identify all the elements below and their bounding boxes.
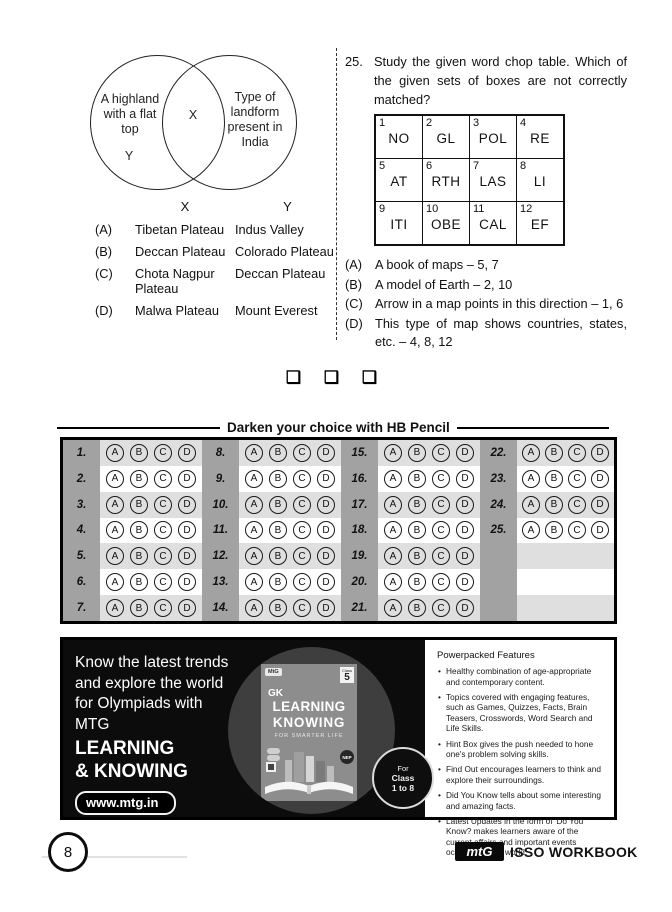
omr-bubble-15-D[interactable]: D (456, 444, 474, 462)
omr-bubble-11-A[interactable]: A (245, 521, 263, 539)
option-y-value: Mount Everest (235, 303, 340, 318)
for-class-badge: For Class 1 to 8 (372, 747, 434, 809)
omr-number-cell (480, 543, 517, 569)
option-label: (C) (95, 266, 135, 296)
ad-copy: Know the latest trends and explore the w… (75, 653, 228, 815)
omr-bubble-3-D[interactable]: D (178, 496, 196, 514)
chop-cell-text: CAL (470, 217, 516, 232)
omr-bubble-22-B[interactable]: B (545, 444, 563, 462)
omr-bubble-18-A[interactable]: A (384, 521, 402, 539)
omr-number-cell: 8. (202, 440, 239, 466)
omr-number-cell: 17. (341, 492, 378, 518)
qr-code (266, 762, 276, 772)
omr-number-cell: 14. (202, 595, 239, 621)
book-tagline: FOR SMARTER LIFE (261, 733, 357, 739)
chop-cell-number: 2 (426, 117, 432, 129)
omr-title: Darken your choice with HB Pencil (227, 420, 450, 435)
chop-cell-number: 5 (379, 160, 385, 172)
omr-number-cell: 23. (480, 466, 517, 492)
question-option: (C)Arrow in a map points in this directi… (345, 295, 627, 314)
omr-bubble-13-D[interactable]: D (317, 573, 335, 591)
omr-bubble-4-C[interactable]: C (154, 521, 172, 539)
omr-bubble-25-B[interactable]: B (545, 521, 563, 539)
omr-bubble-20-C[interactable]: C (432, 573, 450, 591)
omr-bubble-24-B[interactable]: B (545, 496, 563, 514)
omr-number-cell: 9. (202, 466, 239, 492)
omr-bubble-14-D[interactable]: D (317, 599, 335, 617)
feature-item: Find Out encourages learners to think an… (437, 764, 606, 785)
omr-number-cell: 21. (341, 595, 378, 621)
omr-bubble-10-D[interactable]: D (317, 496, 335, 514)
omr-bubble-9-C[interactable]: C (293, 470, 311, 488)
gk-label: GK (268, 688, 283, 699)
chop-cell-text: LAS (470, 174, 516, 189)
feature-item: Healthy combination of age-appropriate a… (437, 666, 606, 687)
option-label: (B) (95, 244, 135, 259)
omr-bubble-23-C[interactable]: C (568, 470, 586, 488)
book-title-line2: KNOWING (261, 715, 357, 730)
omr-bubble-21-A[interactable]: A (384, 599, 402, 617)
omr-bubble-13-A[interactable]: A (245, 573, 263, 591)
question-option: (A)A book of maps – 5, 7 (345, 256, 627, 275)
omr-bubble-6-C[interactable]: C (154, 573, 172, 591)
omr-bubble-23-A[interactable]: A (522, 470, 540, 488)
omr-bubble-row (517, 595, 614, 621)
book-title-line1: LEARNING (261, 699, 357, 714)
omr-number-cell: 19. (341, 543, 378, 569)
omr-number-cell: 15. (341, 440, 378, 466)
chop-cell-text: ITI (376, 217, 422, 232)
omr-bubble-24-C[interactable]: C (568, 496, 586, 514)
omr-bubble-17-A[interactable]: A (384, 496, 402, 514)
chop-cell-text: RE (517, 131, 563, 146)
omr-bubble-17-B[interactable]: B (408, 496, 426, 514)
omr-bubble-6-D[interactable]: D (178, 573, 196, 591)
omr-bubble-5-B[interactable]: B (130, 547, 148, 565)
omr-bubble-13-C[interactable]: C (293, 573, 311, 591)
omr-bubble-8-B[interactable]: B (269, 444, 287, 462)
omr-bubble-16-C[interactable]: C (432, 470, 450, 488)
omr-bubble-25-D[interactable]: D (591, 521, 609, 539)
omr-bubble-19-D[interactable]: D (456, 547, 474, 565)
omr-bubble-16-D[interactable]: D (456, 470, 474, 488)
chop-cell-number: 12 (520, 203, 532, 215)
omr-bubble-19-C[interactable]: C (432, 547, 450, 565)
omr-number-cell: 12. (202, 543, 239, 569)
chop-cell-text: NO (376, 131, 422, 146)
open-book-illustration (263, 775, 355, 801)
option-y-value: Deccan Plateau (235, 266, 340, 296)
chop-cell: 5AT (375, 159, 423, 202)
omr-bubble-11-D[interactable]: D (317, 521, 335, 539)
omr-bubble-row: ABCD (517, 440, 614, 466)
omr-bubble-2-B[interactable]: B (130, 470, 148, 488)
omr-bubble-10-C[interactable]: C (293, 496, 311, 514)
omr-answer-grid: 1.ABCD8.ABCD15.ABCD22.ABCD2.ABCD9.ABCD16… (60, 437, 617, 624)
chop-cell-number: 4 (520, 117, 526, 129)
omr-number-cell: 7. (63, 595, 100, 621)
page-number-badge: 8 (48, 832, 88, 872)
badge-line: Class (392, 773, 415, 783)
chop-cell: 10OBE (423, 202, 470, 246)
chop-cell-text: AT (376, 174, 422, 189)
omr-bubble-1-D[interactable]: D (178, 444, 196, 462)
omr-bubble-row: ABCD (378, 492, 480, 518)
omr-number-cell: 3. (63, 492, 100, 518)
omr-bubble-8-D[interactable]: D (317, 444, 335, 462)
omr-bubble-25-C[interactable]: C (568, 521, 586, 539)
omr-bubble-15-B[interactable]: B (408, 444, 426, 462)
omr-bubble-20-D[interactable]: D (456, 573, 474, 591)
omr-title-row: Darken your choice with HB Pencil (57, 420, 618, 435)
omr-number-cell (480, 569, 517, 595)
venn-options-table: X Y (A)Tibetan PlateauIndus Valley(B)Dec… (95, 199, 340, 325)
option-x-value: Tibetan Plateau (135, 222, 235, 237)
omr-bubble-row: ABCD (517, 492, 614, 518)
chop-cell-number: 6 (426, 160, 432, 172)
omr-bubble-23-D[interactable]: D (591, 470, 609, 488)
omr-bubble-6-B[interactable]: B (130, 573, 148, 591)
omr-bubble-12-C[interactable]: C (293, 547, 311, 565)
omr-bubble-1-B[interactable]: B (130, 444, 148, 462)
venn-option-row: (B)Deccan PlateauColorado Plateau (95, 244, 340, 259)
option-label: (A) (345, 256, 375, 275)
option-y-value: Colorado Plateau (235, 244, 340, 259)
omr-bubble-16-B[interactable]: B (408, 470, 426, 488)
cover-badge-oval (267, 748, 280, 754)
omr-bubble-row: ABCD (239, 595, 341, 621)
option-x-value: Malwa Plateau (135, 303, 235, 318)
chop-cell-text: RTH (423, 174, 469, 189)
omr-bubble-15-A[interactable]: A (384, 444, 402, 462)
chop-cell: 8LI (517, 159, 565, 202)
omr-bubble-9-B[interactable]: B (269, 470, 287, 488)
mtg-footer-logo: mtG (455, 842, 504, 861)
omr-bubble-7-B[interactable]: B (130, 599, 148, 617)
option-x-value: Deccan Plateau (135, 244, 235, 259)
omr-number-cell: 4. (63, 518, 100, 544)
omr-bubble-3-B[interactable]: B (130, 496, 148, 514)
omr-bubble-7-C[interactable]: C (154, 599, 172, 617)
chop-cell-text: GL (423, 131, 469, 146)
omr-number-cell (480, 595, 517, 621)
chop-cell-number: 11 (473, 203, 484, 215)
omr-bubble-24-A[interactable]: A (522, 496, 540, 514)
omr-number-cell: 11. (202, 518, 239, 544)
omr-bubble-21-B[interactable]: B (408, 599, 426, 617)
omr-bubble-25-A[interactable]: A (522, 521, 540, 539)
option-label: (A) (95, 222, 135, 237)
omr-bubble-21-C[interactable]: C (432, 599, 450, 617)
omr-number-cell: 18. (341, 518, 378, 544)
chop-cell: 6RTH (423, 159, 470, 202)
omr-bubble-18-D[interactable]: D (456, 521, 474, 539)
omr-bubble-19-B[interactable]: B (408, 547, 426, 565)
mtg-logo: MtG (265, 668, 282, 676)
omr-bubble-row: ABCD (378, 543, 480, 569)
omr-bubble-12-D[interactable]: D (317, 547, 335, 565)
omr-bubble-row: ABCD (378, 440, 480, 466)
column-x-header: X (135, 199, 235, 214)
book-showcase-circle: MtG Class 5 GK LEARNING KNOWING FOR SMAR… (228, 647, 395, 814)
chop-cell-text: LI (517, 174, 563, 189)
omr-bubble-4-A[interactable]: A (106, 521, 124, 539)
omr-bubble-4-D[interactable]: D (178, 521, 196, 539)
omr-number-cell: 1. (63, 440, 100, 466)
omr-bubble-10-B[interactable]: B (269, 496, 287, 514)
omr-bubble-9-D[interactable]: D (317, 470, 335, 488)
column-divider (336, 48, 337, 340)
omr-bubble-3-A[interactable]: A (106, 496, 124, 514)
badge-line: For (397, 764, 408, 773)
omr-number-cell: 6. (63, 569, 100, 595)
chop-cell-number: 7 (473, 160, 479, 172)
workbook-page: A highland with a flat top X Y Type of l… (0, 0, 672, 912)
omr-bubble-row: ABCD (100, 466, 202, 492)
chop-cell-text: EF (517, 217, 563, 232)
omr-bubble-2-A[interactable]: A (106, 470, 124, 488)
omr-bubble-2-C[interactable]: C (154, 470, 172, 488)
option-text: This type of map shows countries, states… (375, 315, 627, 352)
omr-bubble-17-D[interactable]: D (456, 496, 474, 514)
chop-cell: 4RE (517, 115, 565, 159)
omr-number-cell: 16. (341, 466, 378, 492)
omr-bubble-row: ABCD (378, 518, 480, 544)
omr-number-cell: 5. (63, 543, 100, 569)
omr-number-cell: 22. (480, 440, 517, 466)
option-text: A model of Earth – 2, 10 (375, 276, 627, 295)
chop-cell: 12EF (517, 202, 565, 246)
omr-bubble-13-B[interactable]: B (269, 573, 287, 591)
omr-bubble-6-A[interactable]: A (106, 573, 124, 591)
omr-number-cell: 24. (480, 492, 517, 518)
omr-bubble-14-B[interactable]: B (269, 599, 287, 617)
ad-brand-title: LEARNING & KNOWING (75, 737, 228, 783)
badge-line: 1 to 8 (392, 783, 414, 793)
venn-left-label: A highland with a flat top (96, 92, 164, 137)
question-option: (D)This type of map shows countries, sta… (345, 315, 627, 352)
features-title: Powerpacked Features (437, 650, 606, 661)
omr-bubble-row: ABCD (517, 518, 614, 544)
option-text: Arrow in a map points in this direction … (375, 295, 627, 314)
omr-bubble-row: ABCD (100, 518, 202, 544)
chop-cell: 11CAL (470, 202, 517, 246)
omr-bubble-row: ABCD (239, 518, 341, 544)
chop-cell-number: 9 (379, 203, 385, 215)
question-25: 25. Study the given word chop table. Whi… (345, 52, 627, 353)
omr-bubble-row: ABCD (100, 492, 202, 518)
class-number: 5 (340, 673, 354, 683)
omr-bubble-14-C[interactable]: C (293, 599, 311, 617)
omr-bubble-row: ABCD (517, 466, 614, 492)
omr-bubble-14-A[interactable]: A (245, 599, 263, 617)
omr-bubble-8-C[interactable]: C (293, 444, 311, 462)
option-y-value: Indus Valley (235, 222, 340, 237)
venn-options-header: X Y (95, 199, 340, 214)
column-y-header: Y (235, 199, 340, 214)
chop-cell-text: OBE (423, 217, 469, 232)
ad-dark-panel: Know the latest trends and explore the w… (63, 640, 425, 817)
venn-right-label: Type of landform present in India (222, 90, 288, 150)
omr-number-cell: 2. (63, 466, 100, 492)
omr-bubble-row: ABCD (100, 569, 202, 595)
omr-bubble-row: ABCD (239, 543, 341, 569)
omr-bubble-20-A[interactable]: A (384, 573, 402, 591)
omr-bubble-21-D[interactable]: D (456, 599, 474, 617)
class-level-badge: Class 5 (340, 667, 354, 683)
omr-bubble-1-C[interactable]: C (154, 444, 172, 462)
omr-bubble-row: ABCD (378, 595, 480, 621)
chop-cell-number: 3 (473, 117, 479, 129)
omr-bubble-8-A[interactable]: A (245, 444, 263, 462)
omr-bubble-11-C[interactable]: C (293, 521, 311, 539)
feature-item: Topics covered with engaging features, s… (437, 692, 606, 734)
omr-bubble-16-A[interactable]: A (384, 470, 402, 488)
omr-bubble-24-D[interactable]: D (591, 496, 609, 514)
omr-bubble-22-C[interactable]: C (568, 444, 586, 462)
venn-option-row: (A)Tibetan PlateauIndus Valley (95, 222, 340, 237)
omr-bubble-7-A[interactable]: A (106, 599, 124, 617)
omr-bubble-12-A[interactable]: A (245, 547, 263, 565)
chop-cell: 9ITI (375, 202, 423, 246)
omr-bubble-row: ABCD (239, 569, 341, 595)
omr-bubble-row: ABCD (239, 492, 341, 518)
question-25-options: (A)A book of maps – 5, 7(B)A model of Ea… (345, 256, 627, 352)
feature-item: Hint Box gives the push needed to hone o… (437, 739, 606, 760)
omr-bubble-row: ABCD (100, 543, 202, 569)
omr-bubble-row: ABCD (100, 595, 202, 621)
omr-bubble-15-C[interactable]: C (432, 444, 450, 462)
chop-cell: 2GL (423, 115, 470, 159)
omr-bubble-9-A[interactable]: A (245, 470, 263, 488)
omr-number-cell: 10. (202, 492, 239, 518)
chop-cell-number: 1 (379, 117, 385, 129)
section-separator-squares: ❑ ❑ ❑ (0, 368, 672, 388)
cover-badge-oval (267, 755, 280, 761)
ad-features-panel: Powerpacked Features Healthy combination… (425, 640, 614, 817)
advertisement-banner: Know the latest trends and explore the w… (60, 637, 617, 820)
nep-badge: NEP (340, 750, 354, 764)
question-option: (B)A model of Earth – 2, 10 (345, 276, 627, 295)
chop-cell: 3POL (470, 115, 517, 159)
omr-bubble-7-D[interactable]: D (178, 599, 196, 617)
venn-option-row: (C)Chota Nagpur PlateauDeccan Plateau (95, 266, 340, 296)
omr-bubble-12-B[interactable]: B (269, 547, 287, 565)
omr-bubble-5-D[interactable]: D (178, 547, 196, 565)
feature-item: Did You Know tells about some interestin… (437, 790, 606, 811)
omr-bubble-19-A[interactable]: A (384, 547, 402, 565)
option-label: (B) (345, 276, 375, 295)
venn-option-row: (D)Malwa PlateauMount Everest (95, 303, 340, 318)
omr-bubble-20-B[interactable]: B (408, 573, 426, 591)
omr-bubble-1-A[interactable]: A (106, 444, 124, 462)
omr-bubble-18-B[interactable]: B (408, 521, 426, 539)
omr-bubble-23-B[interactable]: B (545, 470, 563, 488)
option-x-value: Chota Nagpur Plateau (135, 266, 235, 296)
chop-cell-number: 8 (520, 160, 526, 172)
omr-bubble-row: ABCD (378, 466, 480, 492)
omr-bubble-row: ABCD (239, 440, 341, 466)
omr-bubble-18-C[interactable]: C (432, 521, 450, 539)
chop-cell-number: 10 (426, 203, 438, 215)
features-list: Healthy combination of age-appropriate a… (437, 666, 606, 858)
omr-number-cell: 20. (341, 569, 378, 595)
word-chop-table: 1NO2GL3POL4RE5AT6RTH7LAS8LI9ITI10OBE11CA… (374, 114, 565, 246)
omr-bubble-row: ABCD (100, 440, 202, 466)
omr-bubble-17-C[interactable]: C (432, 496, 450, 514)
omr-bubble-row (517, 569, 614, 595)
omr-number-cell: 25. (480, 518, 517, 544)
venn-left-variable: Y (118, 149, 140, 164)
empty-cell (95, 199, 135, 214)
omr-bubble-2-D[interactable]: D (178, 470, 196, 488)
omr-bubble-5-C[interactable]: C (154, 547, 172, 565)
chop-cell-text: POL (470, 131, 516, 146)
omr-bubble-10-A[interactable]: A (245, 496, 263, 514)
omr-bubble-11-B[interactable]: B (269, 521, 287, 539)
option-text: A book of maps – 5, 7 (375, 256, 627, 275)
option-label: (D) (345, 315, 375, 352)
venn-intersection-label: X (182, 108, 204, 123)
omr-bubble-row: ABCD (239, 466, 341, 492)
website-link[interactable]: www.mtg.in (75, 791, 176, 815)
omr-bubble-5-A[interactable]: A (106, 547, 124, 565)
chop-cell: 7LAS (470, 159, 517, 202)
omr-bubble-row (517, 543, 614, 569)
omr-bubble-22-A[interactable]: A (522, 444, 540, 462)
option-label: (D) (95, 303, 135, 318)
omr-bubble-4-B[interactable]: B (130, 521, 148, 539)
question-text: Study the given word chop table. Which o… (374, 52, 627, 109)
question-number: 25. (345, 52, 374, 109)
ad-headline: Know the latest trends and explore the w… (75, 653, 228, 735)
option-label: (C) (345, 295, 375, 314)
omr-bubble-22-D[interactable]: D (591, 444, 609, 462)
chop-cell: 1NO (375, 115, 423, 159)
omr-bubble-3-C[interactable]: C (154, 496, 172, 514)
workbook-title: ISSO WORKBOOK (510, 844, 638, 860)
omr-bubble-row: ABCD (378, 569, 480, 595)
title-rule-right (457, 427, 609, 429)
title-rule-left (57, 427, 220, 429)
omr-number-cell: 13. (202, 569, 239, 595)
book-cover: MtG Class 5 GK LEARNING KNOWING FOR SMAR… (261, 664, 357, 801)
